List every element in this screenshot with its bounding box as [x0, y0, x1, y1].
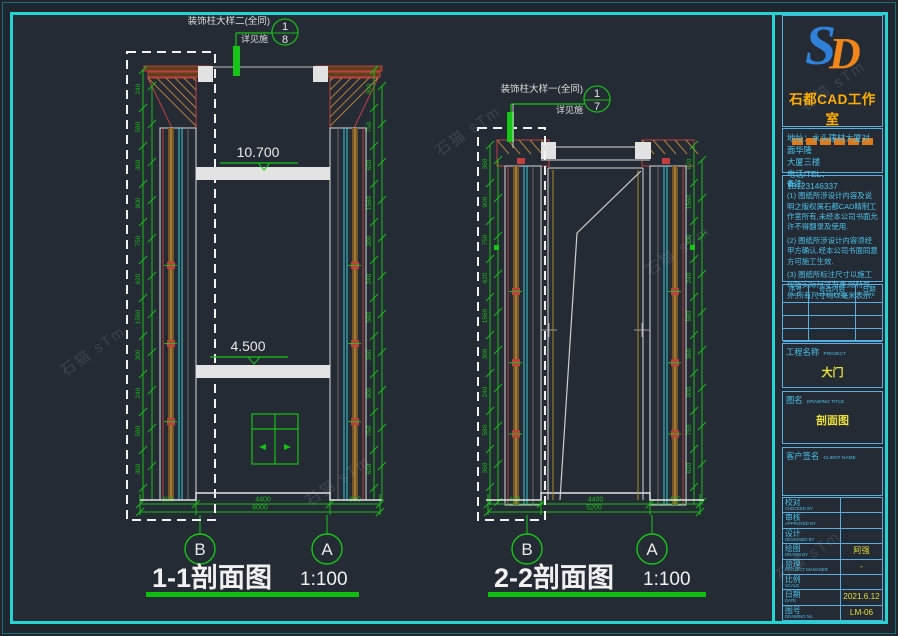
section1-underline	[146, 592, 359, 597]
project-box: 工程名称 PROJECT 大门	[782, 343, 883, 388]
svg-text:580: 580	[135, 121, 142, 132]
section1-title-text: 1-1剖面图	[152, 562, 272, 593]
cad-sheet: 2405803609007506201560300240580360900750…	[0, 0, 898, 636]
field-date: 日期DATE 2021.6.12	[783, 590, 882, 605]
svg-text:900: 900	[366, 387, 373, 398]
svg-text:5200: 5200	[586, 505, 602, 512]
svg-text:620: 620	[482, 272, 489, 283]
callout1-number: 1	[282, 21, 288, 33]
rev-cell	[809, 329, 857, 342]
client-signature-box: 客户签名 CLIENT NAME	[782, 447, 883, 496]
svg-text:900: 900	[135, 197, 142, 208]
svg-text:580: 580	[686, 310, 693, 321]
svg-text:360: 360	[482, 462, 489, 473]
section-1-1-title: 1-1剖面图 1:100	[146, 562, 359, 597]
callout1-label: 装饰柱大样二(全同)	[188, 15, 270, 27]
callout2-sub: 详见施	[556, 104, 583, 115]
field-drawn-by: 绘图DRAWN BY 阿强	[783, 544, 882, 559]
note-2: (2) 图纸所涉设计内容须经甲方确认,经本公司书面同意方可施工生效.	[787, 236, 878, 267]
svg-text:1560: 1560	[686, 194, 693, 209]
svg-text:580: 580	[482, 424, 489, 435]
section2-underline	[488, 592, 706, 597]
signature-fields: 校对CHECKED BY 审核APPROVED BY 设计DESIGNED BY…	[782, 497, 883, 621]
revision-table: 序号NO. 修改内容DESCRIPTION 日期DATE	[782, 284, 883, 341]
callout2-label: 装饰柱大样一(全同)	[501, 83, 583, 95]
callout1-sheet: 8	[282, 34, 288, 46]
svg-text:A: A	[321, 540, 333, 559]
svg-text:750: 750	[135, 235, 142, 246]
level-value-lower: 4.500	[230, 338, 265, 354]
section1-scale: 1:100	[300, 569, 348, 590]
address-line2: 大厦三楼	[787, 156, 878, 168]
svg-text:360: 360	[482, 158, 489, 169]
logo-box: S D 石都CAD工作室	[782, 15, 883, 127]
svg-text:240: 240	[135, 387, 142, 398]
svg-text:620: 620	[135, 273, 142, 284]
notes-box: 备注: (1) 图纸所涉设计内容及说明之版权属石都CAD精制工作室所有,未经本公…	[782, 175, 883, 282]
callout2-number: 1	[594, 88, 600, 100]
svg-text:240: 240	[135, 83, 142, 94]
svg-text:620: 620	[366, 159, 373, 170]
rev-header-no: 序号NO.	[783, 285, 809, 303]
level-marker-10700: 10.700	[220, 144, 298, 170]
section-2-2-title: 2-2剖面图 1:100	[488, 562, 706, 597]
svg-text:750: 750	[686, 424, 693, 435]
rev-cell	[783, 329, 809, 342]
svg-text:240: 240	[366, 273, 373, 284]
field-project-manager: 监理PROJECT MANAGER -	[783, 560, 882, 575]
svg-text:1560: 1560	[482, 308, 489, 323]
studio-logo-icon: S D	[783, 20, 882, 86]
svg-text:620: 620	[366, 463, 373, 474]
notes-title: 备注:	[787, 179, 878, 189]
rev-cell	[783, 303, 809, 316]
field-designed-by: 设计DESIGNED BY	[783, 529, 882, 544]
svg-text:B: B	[521, 540, 532, 559]
svg-text:360: 360	[135, 159, 142, 170]
svg-text:6000: 6000	[252, 505, 268, 512]
level-marker-4500: 4.500	[210, 338, 288, 364]
rev-header-date: 日期DATE	[856, 285, 882, 303]
drawing-title-box: 图名 DRAWING TITLE 剖面图	[782, 391, 883, 444]
svg-text:240: 240	[686, 272, 693, 283]
callout1-sub: 详见施	[241, 33, 268, 44]
svg-text:360: 360	[686, 348, 693, 359]
svg-text:300: 300	[135, 349, 142, 360]
studio-name: 石都CAD工作室	[783, 88, 882, 128]
note-1: (1) 图纸所涉设计内容及说明之版权属石都CAD精制工作室所有,未经本公司书面允…	[787, 191, 878, 232]
drawing-canvas: 2405803609007506201560300240580360900750…	[0, 0, 772, 636]
section-1-1-generated: 2405803609007506201560300240580360900750…	[135, 66, 386, 564]
svg-text:4400: 4400	[588, 497, 604, 504]
rev-cell	[856, 316, 882, 329]
svg-text:360: 360	[366, 349, 373, 360]
drawing-title-value: 剖面图	[783, 412, 882, 428]
field-checked-by: 校对CHECKED BY	[783, 498, 882, 513]
svg-text:620: 620	[686, 462, 693, 473]
svg-text:900: 900	[686, 386, 693, 397]
rev-cell	[783, 316, 809, 329]
detail-callout-2: 装饰柱大样一(全同) 详见施 1 7	[501, 83, 610, 148]
logo-letter-d: D	[829, 28, 861, 79]
door-leaf-2-2	[548, 168, 643, 500]
address-line1: 地址：水头建材大厦对面华隆	[787, 132, 878, 156]
rev-cell	[856, 303, 882, 316]
svg-text:1560: 1560	[366, 195, 373, 210]
svg-text:900: 900	[366, 83, 373, 94]
svg-text:580: 580	[366, 311, 373, 322]
svg-text:750: 750	[366, 425, 373, 436]
svg-text:1560: 1560	[135, 309, 142, 324]
rev-cell	[856, 329, 882, 342]
svg-text:300: 300	[482, 348, 489, 359]
field-drawing-number: 图号DRAWING No. LM-06	[783, 606, 882, 621]
project-name: 大门	[783, 364, 882, 380]
svg-text:620: 620	[686, 158, 693, 169]
rev-header-description: 修改内容DESCRIPTION	[809, 285, 857, 303]
svg-text:4400: 4400	[255, 497, 271, 504]
section2-scale: 1:100	[643, 569, 691, 590]
svg-text:580: 580	[135, 425, 142, 436]
svg-text:750: 750	[482, 234, 489, 245]
svg-text:300: 300	[686, 234, 693, 245]
door-elevation-symbol	[252, 414, 298, 464]
section2-title-text: 2-2剖面图	[494, 562, 614, 593]
rev-cell	[809, 303, 857, 316]
field-scale: 比例SCALE	[783, 575, 882, 590]
address-box: 地址：水头建材大厦对面华隆 大厦三楼 电话/TEL：13123146337	[782, 128, 883, 173]
svg-text:B: B	[194, 540, 205, 559]
svg-text:240: 240	[482, 386, 489, 397]
rev-cell	[809, 316, 857, 329]
callout2-sheet: 7	[594, 101, 600, 113]
svg-text:750: 750	[366, 121, 373, 132]
level-value-upper: 10.700	[237, 144, 280, 160]
svg-text:A: A	[646, 540, 658, 559]
svg-text:300: 300	[366, 235, 373, 246]
title-block: S D 石都CAD工作室 地址：水头建材大厦对面华隆 大厦三楼 电话/TEL：1…	[772, 12, 891, 624]
beam-4500	[196, 365, 330, 378]
svg-text:900: 900	[482, 196, 489, 207]
svg-text:360: 360	[135, 463, 142, 474]
field-approved-by: 审核APPROVED BY	[783, 513, 882, 528]
